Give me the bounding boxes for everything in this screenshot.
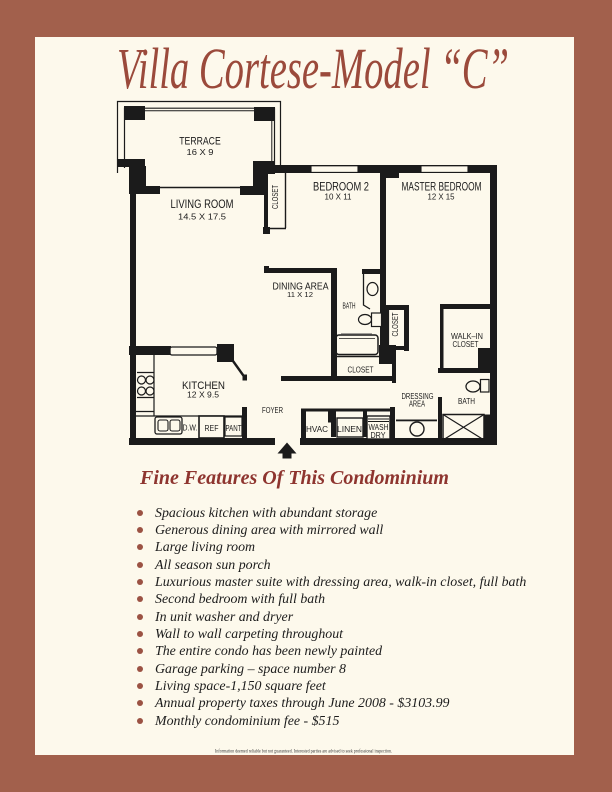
- svg-text:BATH: BATH: [343, 301, 356, 311]
- svg-text:16 X 9: 16 X 9: [187, 147, 214, 157]
- svg-text:Villa Cortese-Model “C”: Villa Cortese-Model “C”: [117, 37, 509, 101]
- svg-text:REF: REF: [205, 424, 219, 433]
- svg-text:CLOSET: CLOSET: [390, 312, 400, 337]
- svg-text:LIVING ROOM: LIVING ROOM: [171, 197, 234, 211]
- svg-text:BATH: BATH: [458, 396, 475, 406]
- svg-text:12 X 9.5: 12 X 9.5: [187, 390, 219, 400]
- svg-text:CLOSET: CLOSET: [270, 184, 280, 209]
- svg-text:11 X 12: 11 X 12: [287, 290, 313, 299]
- svg-text:Information deemed reliable bu: Information deemed reliable but not guar…: [215, 749, 392, 754]
- svg-text:FOYER: FOYER: [262, 405, 283, 415]
- svg-text:DRY: DRY: [371, 431, 387, 440]
- svg-text:LINEN: LINEN: [337, 424, 362, 434]
- svg-text:14.5 X 17.5: 14.5 X 17.5: [178, 212, 226, 222]
- svg-text:AREA: AREA: [409, 399, 425, 409]
- svg-text:TERRACE: TERRACE: [179, 136, 221, 148]
- svg-text:PANT: PANT: [226, 424, 242, 433]
- svg-text:12 X 15: 12 X 15: [428, 192, 455, 202]
- svg-text:10 X 11: 10 X 11: [325, 192, 352, 202]
- svg-text:D.W.: D.W.: [183, 424, 198, 433]
- svg-text:HVAC: HVAC: [306, 424, 328, 434]
- svg-text:CLOSET: CLOSET: [453, 339, 480, 349]
- svg-text:CLOSET: CLOSET: [348, 365, 374, 375]
